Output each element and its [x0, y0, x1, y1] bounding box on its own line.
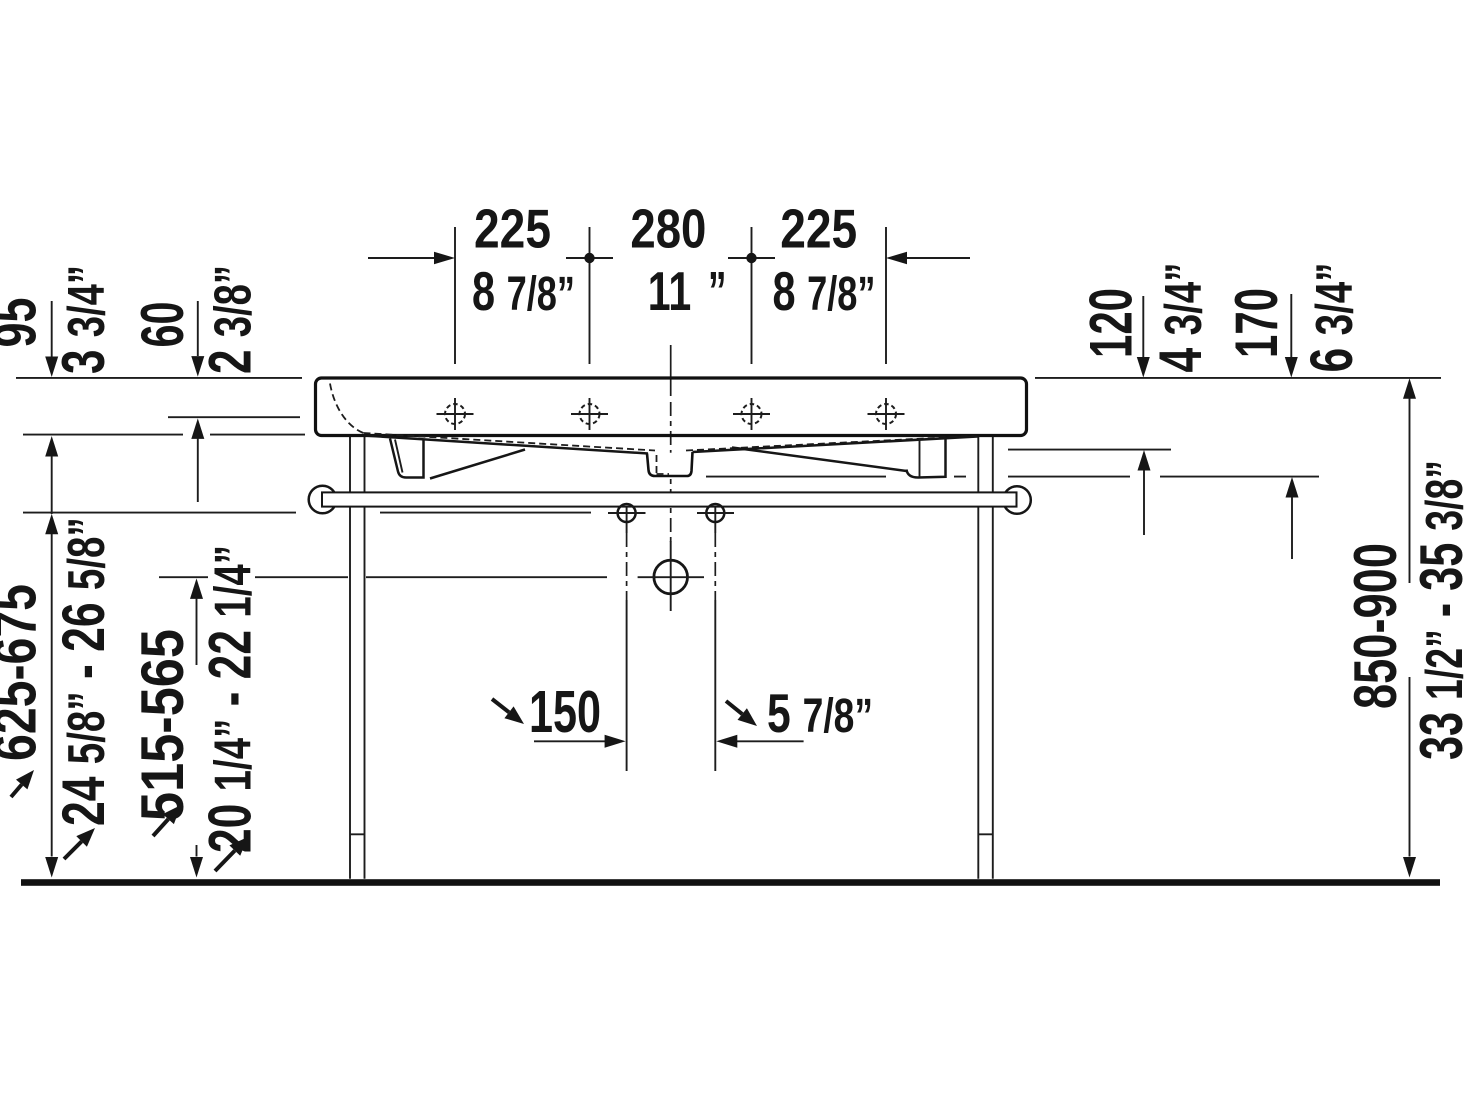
svg-text:6 3/4”: 6 3/4”	[1299, 262, 1366, 372]
svg-text:60: 60	[129, 302, 196, 348]
svg-text:225: 225	[474, 198, 551, 260]
svg-text:95: 95	[0, 298, 49, 348]
svg-text:5 7/8”: 5 7/8”	[767, 683, 873, 744]
svg-text:24 5/8” - 26 5/8”: 24 5/8” - 26 5/8”	[51, 517, 118, 826]
svg-text:170: 170	[1223, 288, 1290, 358]
svg-text:120: 120	[1078, 288, 1145, 358]
svg-text:280: 280	[630, 198, 706, 260]
svg-text:”: ”	[708, 260, 727, 322]
svg-text:850-900: 850-900	[1342, 543, 1409, 709]
svg-text:625-675: 625-675	[0, 584, 49, 761]
svg-text:225: 225	[780, 198, 857, 260]
svg-text:3 3/4”: 3 3/4”	[50, 265, 117, 374]
svg-text:515-565: 515-565	[129, 629, 196, 821]
svg-text:150: 150	[529, 679, 601, 745]
svg-text:33 1/2” - 35 3/8”: 33 1/2” - 35 3/8”	[1409, 460, 1464, 760]
svg-text:11: 11	[648, 260, 692, 322]
svg-text:2 3/8”: 2 3/8”	[197, 265, 264, 374]
svg-text:8 7/8”: 8 7/8”	[472, 261, 575, 322]
svg-text:20 1/4” - 22 1/4”: 20 1/4” - 22 1/4”	[197, 545, 264, 853]
svg-text:4 3/4”: 4 3/4”	[1148, 262, 1215, 372]
svg-text:8 7/8”: 8 7/8”	[773, 261, 876, 322]
